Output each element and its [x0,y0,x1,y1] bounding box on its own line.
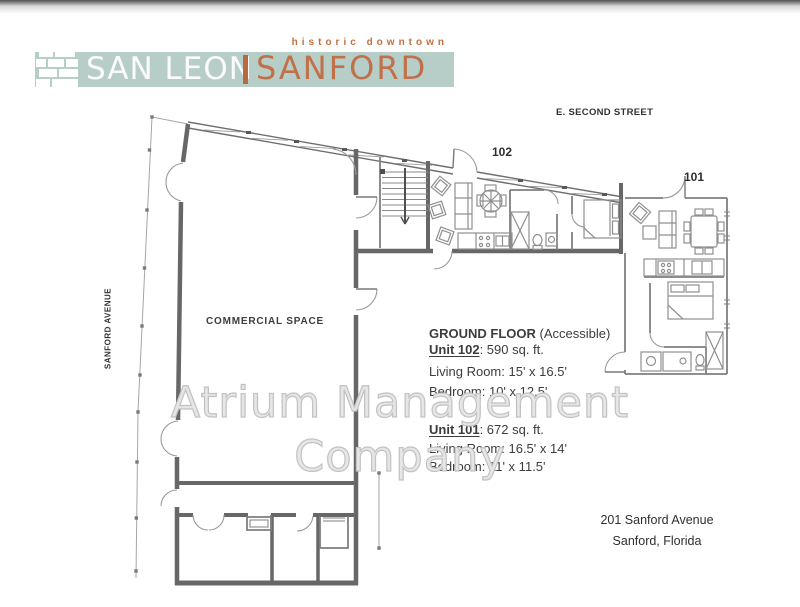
unit-101-living-line: Living Room: 16.5' x 14' [429,441,567,456]
stairs [380,168,428,224]
unit-102-living-line: Living Room: 15' x 16.5' [429,364,567,379]
furniture-unit-102 [428,176,621,249]
unit-102-bedroom-line: Bedroom: 10' x 12.5' [429,384,547,399]
unit-102-label: 102 [492,145,512,159]
furniture-unit-101 [629,202,724,371]
unit-101-label: 101 [684,170,704,184]
property-ticks [134,115,380,572]
ground-floor-title-text: GROUND FLOOR [429,326,536,341]
commercial-space-label: COMMERCIAL SPACE [206,316,324,327]
property-lines [136,117,379,578]
street-label: E. SECOND STREET [556,107,653,118]
address-line-2: Sanford, Florida [582,531,732,552]
unit-102-area-line: Unit 102: 590 sq. ft. [429,342,544,357]
unit-101-area: : 672 sq. ft. [480,422,544,437]
unit-101-area-line: Unit 101: 672 sq. ft. [429,422,544,437]
ground-floor-title: GROUND FLOOR (Accessible) [429,326,610,341]
avenue-label: SANFORD AVENUE [104,279,113,379]
floorplan-page: historic downtown SAN LEON SANFORD [0,0,800,607]
unit-102-area: : 590 sq. ft. [480,342,544,357]
unit-101-bedroom-line: Bedroom: 11' x 11.5' [429,459,546,474]
property-address: 201 Sanford Avenue Sanford, Florida [582,510,732,552]
unit-102-name: Unit 102 [429,342,480,357]
walls-thick [175,124,621,585]
ground-floor-subtitle: (Accessible) [540,326,611,341]
unit-101-name: Unit 101 [429,422,480,437]
address-line-1: 201 Sanford Avenue [582,510,732,531]
